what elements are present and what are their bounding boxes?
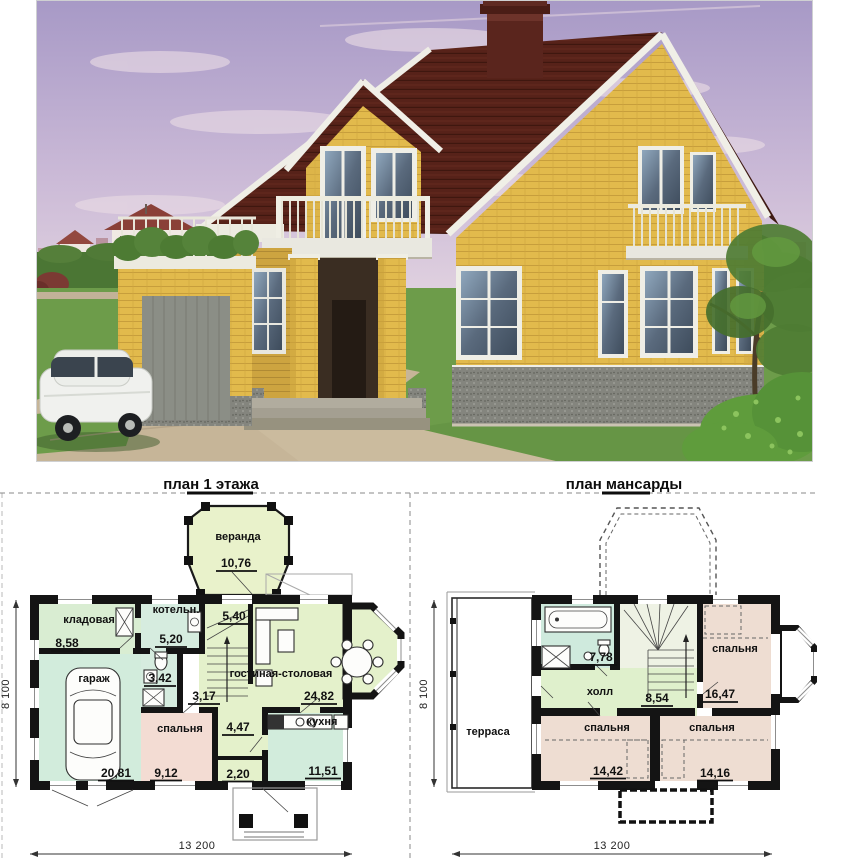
attic-label-hall: холл xyxy=(587,686,613,698)
room-label-kitchen: кухня xyxy=(307,716,338,728)
attic-label-bedroom3: спальня xyxy=(689,722,735,734)
car-glass xyxy=(51,357,133,377)
attic-area-hall: 8,54 xyxy=(645,691,669,705)
porch-plan xyxy=(233,788,317,840)
room-area-bedroom: 9,12 xyxy=(154,766,178,780)
floor1-title-underline xyxy=(187,492,253,495)
attic-area-bedroom3: 14,16 xyxy=(700,766,730,780)
dim-attic-width: 13 200 xyxy=(452,840,772,857)
attic-title-underline xyxy=(602,492,650,495)
room-label-veranda: веранда xyxy=(215,531,261,543)
room-label-bedroom: спальня xyxy=(157,723,203,735)
room-area-entry: 2,20 xyxy=(226,767,250,781)
room-area-hall: 4,47 xyxy=(226,720,250,734)
veranda-roof-dashed xyxy=(600,508,716,595)
attic-stairwell xyxy=(620,604,700,668)
room-label-boiler: котельн. xyxy=(153,604,200,616)
chimney xyxy=(480,0,550,78)
house-photo xyxy=(36,0,813,462)
plan-attic: 7,78 холл 8,54 спальня 16,47 спальня 14,… xyxy=(418,508,817,857)
dim-floor1-height: 8 100 xyxy=(0,600,19,787)
room-area-kitchen: 11,51 xyxy=(308,764,338,778)
svg-text:8 100: 8 100 xyxy=(418,679,430,709)
svg-text:13 200: 13 200 xyxy=(594,840,631,852)
attic-area-bedroom2: 14,42 xyxy=(593,764,623,778)
room-area-garage: 20,81 xyxy=(101,766,131,780)
floor-plans: план 1 этажа план мансарды xyxy=(0,465,850,860)
room-area-bathroom: 3,42 xyxy=(148,671,172,685)
attic-windows xyxy=(638,146,716,214)
attic-label-bedroom1: спальня xyxy=(712,643,758,655)
dim-attic-height: 8 100 xyxy=(418,600,437,787)
attic-label-bedroom2: спальня xyxy=(584,722,630,734)
dim-floor1-width: 13 200 xyxy=(30,840,352,857)
garage-gate xyxy=(52,790,133,806)
room-area-storage: 8,58 xyxy=(55,636,79,650)
room-area-veranda: 10,76 xyxy=(221,556,251,570)
plan-floor1: веранда 10,76 кладовая 8,58 котельн. 5,2… xyxy=(0,502,405,857)
attic-area-bedroom1: 16,47 xyxy=(705,687,735,701)
dining-table xyxy=(342,647,372,677)
room-area-stair-hall: 5,40 xyxy=(222,609,246,623)
room-label-storage: кладовая xyxy=(63,614,115,626)
entrance-door xyxy=(332,300,366,402)
project-sheet: план 1 этажа план мансарды xyxy=(0,0,850,860)
svg-text:8 100: 8 100 xyxy=(0,679,12,709)
attic-label-terrace: терраса xyxy=(466,726,510,738)
svg-text:13 200: 13 200 xyxy=(179,840,216,852)
room-area-boiler: 5,20 xyxy=(159,632,183,646)
veranda-roof-dashed-inner xyxy=(606,514,710,595)
room-area-corridor: 3,17 xyxy=(192,689,216,703)
terrace xyxy=(447,592,535,792)
room-label-living-dining: гостиная-столовая xyxy=(230,668,333,680)
veranda xyxy=(184,502,293,598)
floor1-title: план 1 этажа xyxy=(163,476,259,493)
room-label-garage: гараж xyxy=(78,673,110,685)
attic-area-bathroom: 7,78 xyxy=(589,650,613,664)
attic-balcony xyxy=(620,790,712,822)
attic-title: план мансарды xyxy=(566,476,682,493)
room-area-living-dining: 24,82 xyxy=(304,689,334,703)
